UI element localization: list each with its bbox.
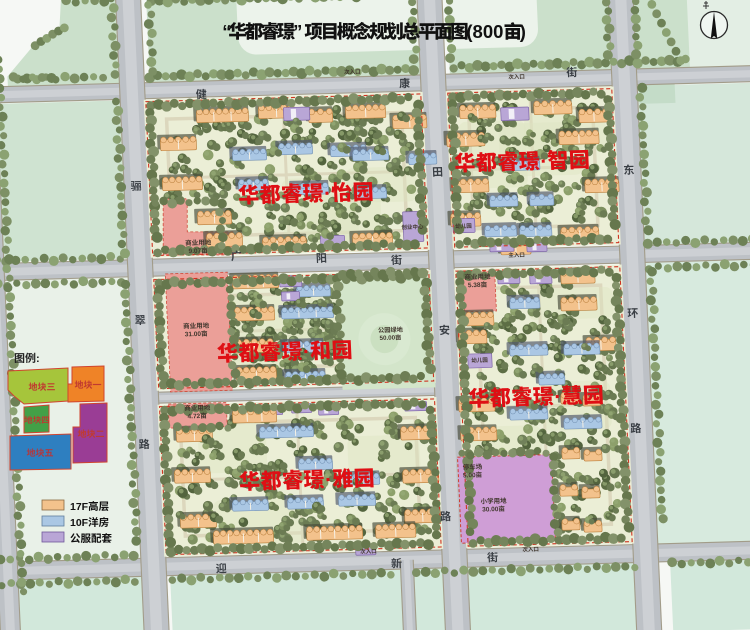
svg-text:5.00: 5.00 [463,472,476,479]
svg-text:9.07: 9.07 [188,248,201,255]
svg-text:): ) [520,21,526,42]
svg-text:5.38: 5.38 [468,282,481,289]
svg-text:·: · [554,385,562,408]
svg-text:10F: 10F [70,517,89,529]
svg-text:50.00: 50.00 [379,335,395,342]
svg-text:17F: 17F [70,501,89,513]
svg-text:30.00: 30.00 [482,506,499,513]
svg-text:·: · [324,182,332,205]
svg-text:·: · [325,469,333,492]
svg-text:·: · [540,150,548,173]
svg-text::: : [36,353,40,365]
svg-text:·: · [303,340,311,363]
svg-text:“: “ [222,21,231,42]
svg-text:”: ” [293,21,302,42]
svg-text:(800: (800 [466,21,503,42]
svg-text:4.72: 4.72 [187,413,200,420]
svg-text:31.00: 31.00 [185,331,202,338]
